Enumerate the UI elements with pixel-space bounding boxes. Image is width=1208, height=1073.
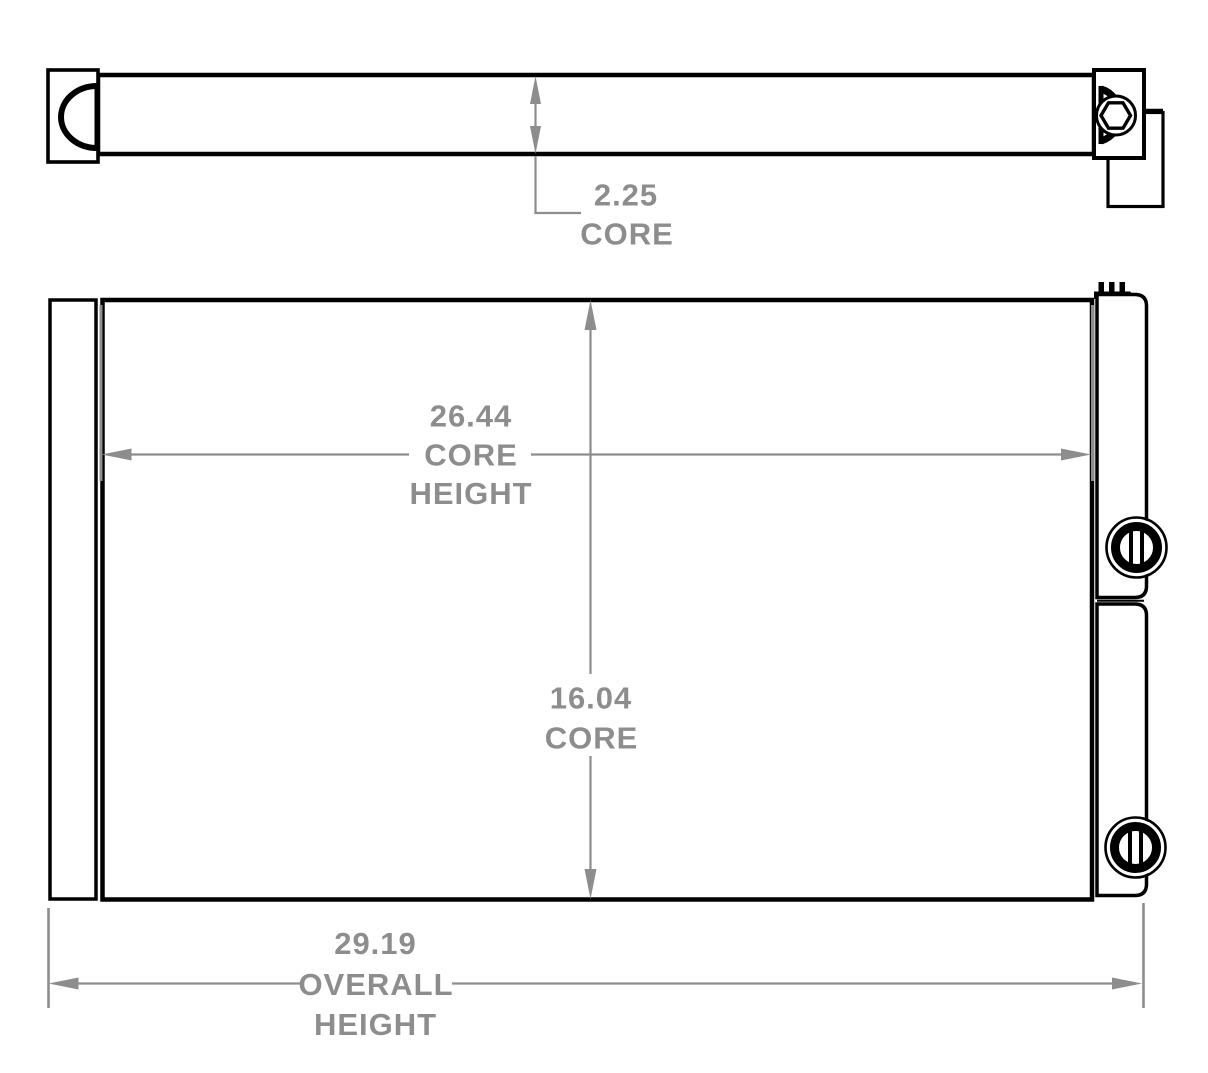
core-face (103, 300, 1093, 900)
port-fitting-lower (1106, 818, 1166, 878)
top-core-bar (98, 75, 1094, 154)
dim-core-width-value: 26.44 (430, 399, 513, 434)
dim-core-width-label-1: CORE (424, 438, 518, 473)
dim-overall-value: 29.19 (334, 926, 417, 961)
fitting-upper-slot-left (1129, 531, 1133, 564)
front-view (50, 282, 1167, 900)
fitting-upper-slot-right (1140, 531, 1144, 564)
dim-core-depth-leader (536, 156, 582, 213)
dim-overall-label-1: OVERALL (298, 967, 453, 1002)
dim-core-width-label-2: HEIGHT (409, 476, 532, 511)
dim-core-depth-label: CORE (580, 217, 674, 252)
fitting-lower-slot-left (1128, 831, 1132, 864)
dim-overall-label-2: HEIGHT (314, 1007, 437, 1042)
port-fitting-upper (1107, 518, 1167, 578)
prong-3 (1120, 282, 1126, 293)
left-side-plate (50, 300, 96, 899)
dim-core-depth-value: 2.25 (594, 178, 658, 213)
prong-2 (1109, 282, 1115, 293)
arrow-overall-right (1112, 978, 1142, 990)
fitting-lower-slot-right (1139, 831, 1143, 864)
arrow-overall-left (49, 978, 79, 990)
bolt-hex-head (1101, 103, 1131, 128)
engineering-drawing: 2.25 CORE 26.44 CORE HEIGHT 16.04 CORE 2… (0, 0, 1208, 1073)
prong-1 (1099, 282, 1105, 293)
dim-core-height-value: 16.04 (550, 681, 633, 716)
dim-core-height-label: CORE (545, 721, 639, 756)
